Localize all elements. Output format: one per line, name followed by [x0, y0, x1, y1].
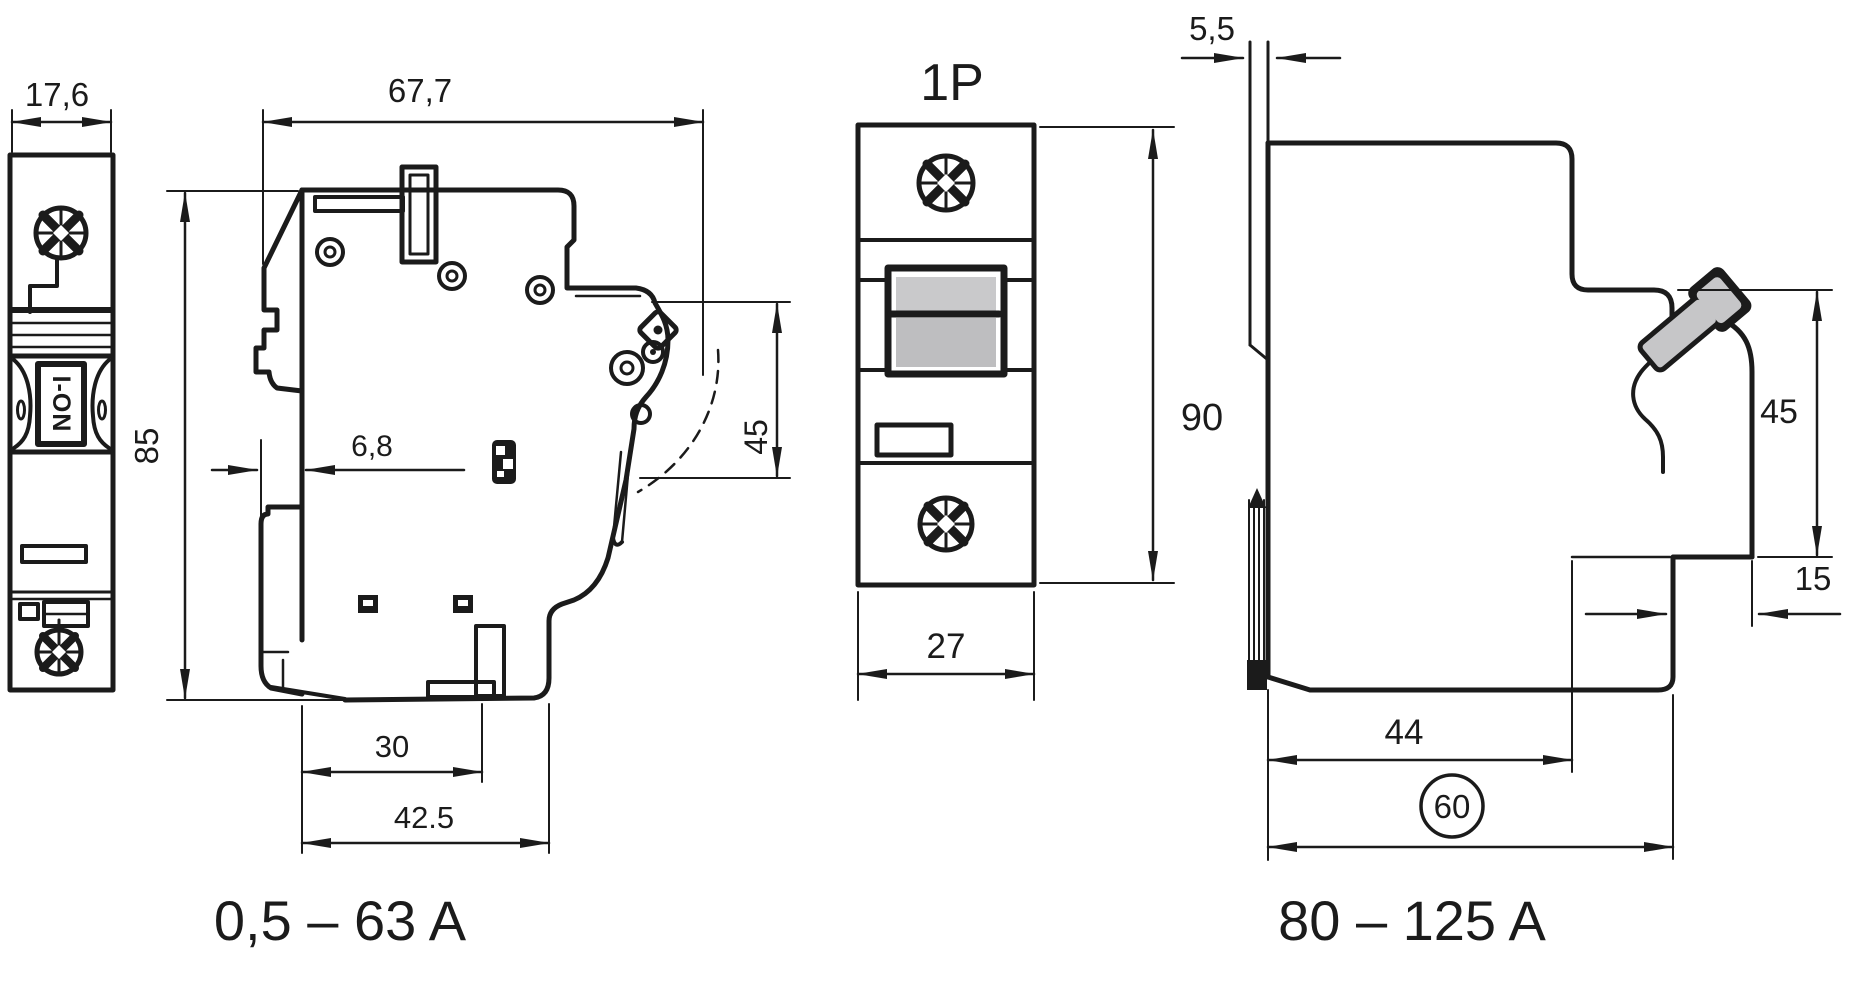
- toggle-knob-bottom: [896, 318, 996, 367]
- dim-front-45: 45: [1760, 393, 1798, 431]
- screw-icon: [36, 208, 86, 258]
- toggle-ion-label: I-ON: [47, 376, 75, 433]
- dim-terminal-15: 15: [1795, 560, 1832, 597]
- breaker-handle: [1631, 264, 1755, 381]
- dimension-drawing-page: 17,6 I-ON: [0, 0, 1859, 998]
- din-clip-strip: [1247, 488, 1267, 690]
- breaker-dimension-drawing: 17,6 I-ON: [0, 0, 1859, 998]
- dim-width-17-6: 17,6: [25, 76, 89, 113]
- foot-slot: [476, 626, 504, 696]
- body-outline-top: [1268, 143, 1672, 334]
- toggle-knob-top: [896, 277, 996, 312]
- dim-width-27: 27: [927, 627, 966, 666]
- dim-depth-67-7: 67,7: [388, 72, 452, 109]
- rivet-icon: [439, 263, 465, 289]
- din-clip-bottom: [261, 507, 302, 694]
- view-front-1p: 1P 90: [858, 54, 1223, 700]
- body-outline-bottom: [1268, 557, 1752, 690]
- dim-slot-30: 30: [375, 729, 409, 764]
- view-side-large: 5,5 45 15: [1182, 10, 1840, 952]
- range-label-small: 0,5 – 63 A: [214, 889, 467, 952]
- body-front-edge: [1724, 320, 1752, 557]
- wire-detail: [30, 260, 57, 312]
- dim-base-44: 44: [1385, 713, 1424, 752]
- dim-panel-5-5: 5,5: [1189, 10, 1235, 47]
- rivet-icon: [527, 277, 553, 303]
- panel-line: [1250, 345, 1268, 360]
- screw-icon: [37, 630, 81, 674]
- dim-base-42-5: 42.5: [394, 800, 454, 835]
- pole-title: 1P: [920, 54, 984, 112]
- screw-icon: [919, 156, 973, 210]
- dim-height-90: 90: [1181, 397, 1223, 439]
- top-slot: [315, 197, 403, 211]
- view-side-small: 67,7 85: [128, 72, 790, 952]
- range-label-large: 80 – 125 A: [1278, 889, 1546, 952]
- dim-height-85: 85: [128, 428, 165, 465]
- toggle-pivot-hole: [99, 401, 106, 419]
- dim-offset-6-8: 6,8: [351, 430, 393, 463]
- latch-detail: [363, 600, 373, 606]
- ledge-detail: [22, 546, 86, 562]
- label-window: [877, 425, 951, 455]
- rivet-icon: [317, 239, 343, 265]
- terminal-detail: [20, 604, 38, 619]
- component-detail: [492, 440, 516, 484]
- handle-travel-arc: [638, 350, 718, 492]
- toggle-pivot-hole: [18, 401, 25, 419]
- dim-handle-45: 45: [738, 419, 774, 455]
- latch-detail: [458, 600, 468, 606]
- view-front-small: 17,6 I-ON: [10, 76, 113, 690]
- screw-icon: [920, 498, 972, 550]
- busbar-slot: [402, 167, 436, 262]
- dim-total-60: 60: [1434, 788, 1471, 825]
- busbar-slot-inner: [410, 175, 428, 254]
